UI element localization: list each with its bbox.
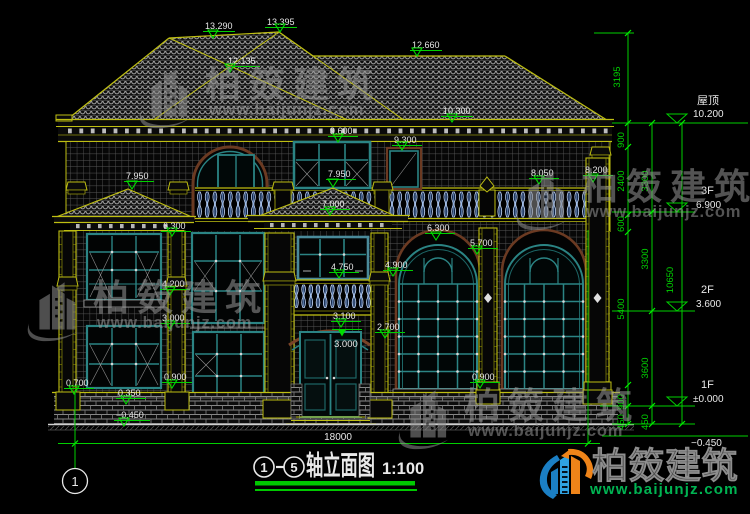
svg-text:±0.000: ±0.000 <box>693 394 724 405</box>
svg-text:10650: 10650 <box>665 267 676 293</box>
svg-text:2F: 2F <box>701 284 714 296</box>
svg-text:3195: 3195 <box>612 66 623 87</box>
svg-text:18000: 18000 <box>324 432 352 443</box>
svg-text:屋顶: 屋顶 <box>697 94 719 107</box>
svg-text:1: 1 <box>71 474 78 489</box>
svg-text:1: 1 <box>260 460 267 475</box>
svg-text:7.950: 7.950 <box>328 169 351 179</box>
svg-text:7.950: 7.950 <box>126 171 149 181</box>
svg-text:3.600: 3.600 <box>696 299 721 310</box>
svg-text:www.baijunjz.com: www.baijunjz.com <box>467 422 623 440</box>
svg-text:10.200: 10.200 <box>693 109 724 120</box>
svg-text:3.000: 3.000 <box>334 339 358 350</box>
svg-text:轴立面图: 轴立面图 <box>306 450 375 481</box>
svg-text:1:100: 1:100 <box>382 460 424 478</box>
svg-text:5400: 5400 <box>616 298 627 319</box>
svg-text:5: 5 <box>290 460 297 475</box>
svg-text:900: 900 <box>616 132 627 148</box>
svg-text:柏笯建筑: 柏笯建筑 <box>464 385 640 426</box>
svg-text:www.baijunjz.com: www.baijunjz.com <box>208 101 364 119</box>
svg-text:6.300: 6.300 <box>163 221 186 231</box>
svg-text:www.baijunjz.com: www.baijunjz.com <box>96 314 252 332</box>
svg-text:柏笯建筑: 柏笯建筑 <box>205 64 381 105</box>
svg-text:www.baijunjz.com: www.baijunjz.com <box>589 481 739 498</box>
svg-text:1F: 1F <box>701 379 714 391</box>
svg-text:柏笯建筑: 柏笯建筑 <box>93 277 269 318</box>
svg-text:3300: 3300 <box>640 248 651 269</box>
svg-text:13.395: 13.395 <box>267 17 295 27</box>
svg-text:450: 450 <box>640 414 651 430</box>
svg-text:柏笯建筑: 柏笯建筑 <box>582 166 750 207</box>
svg-text:柏笯建筑: 柏笯建筑 <box>592 445 738 486</box>
svg-text:www.baijunjz.com: www.baijunjz.com <box>585 203 741 221</box>
svg-text:3600: 3600 <box>640 357 651 378</box>
